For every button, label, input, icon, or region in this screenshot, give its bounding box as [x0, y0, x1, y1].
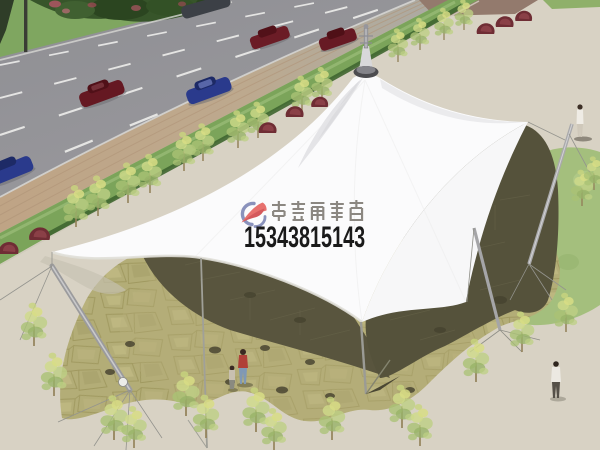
svg-text:15343815143: 15343815143 [244, 221, 365, 254]
